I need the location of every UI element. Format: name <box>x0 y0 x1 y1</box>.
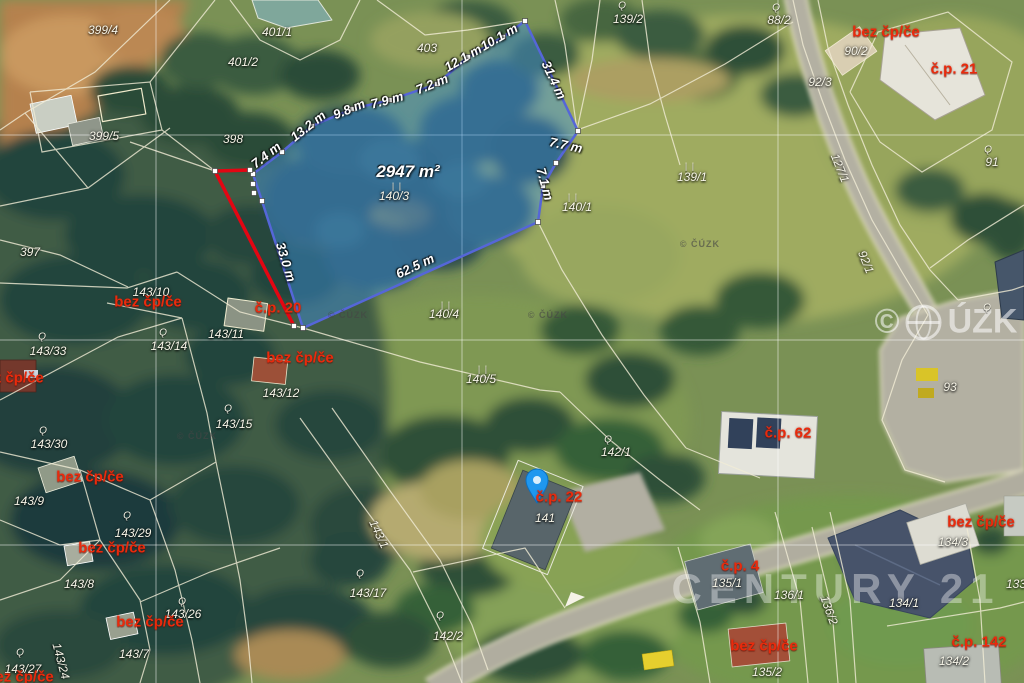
cadastral-aerial-map: 2947 m² © ÚZK CENTURY 21 const data = JS… <box>0 0 1024 683</box>
globe-icon <box>906 304 942 340</box>
copyright-symbol: © <box>875 303 900 342</box>
parcel-area-label: 2947 m² <box>376 162 439 182</box>
cuzk-watermark: © ÚZK <box>875 303 1018 342</box>
century21-watermark: CENTURY 21 <box>671 565 1000 613</box>
